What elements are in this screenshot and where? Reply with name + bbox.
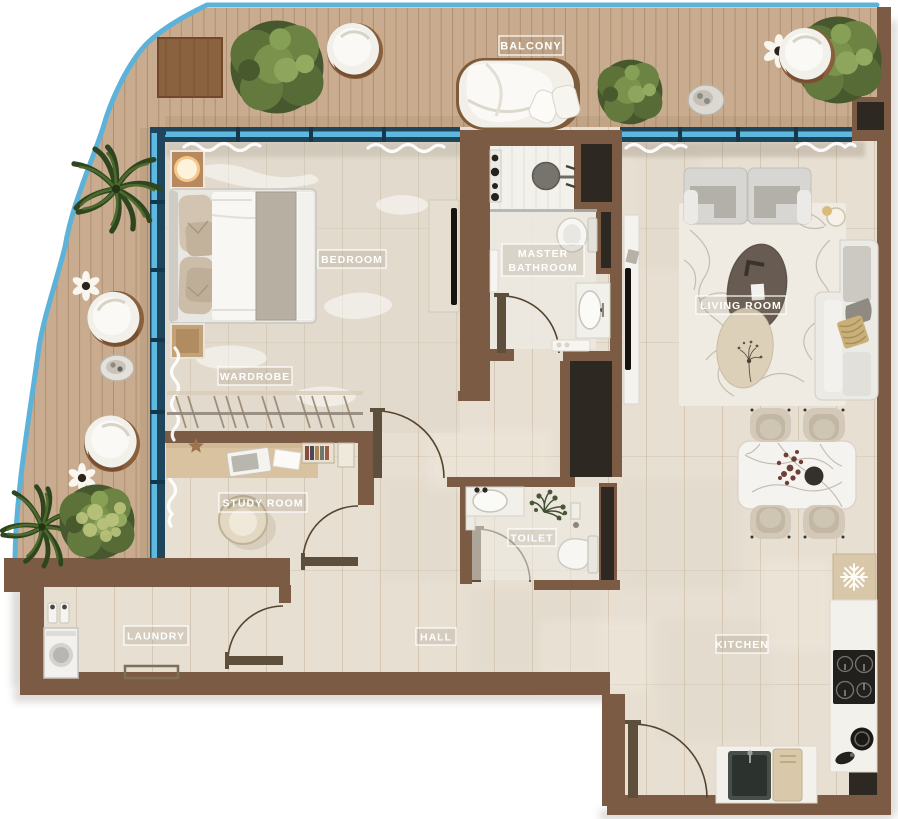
svg-text:WARDROBE: WARDROBE bbox=[220, 371, 290, 383]
svg-text:BEDROOM: BEDROOM bbox=[321, 254, 383, 266]
svg-text:MASTER: MASTER bbox=[518, 248, 568, 260]
svg-text:HALL: HALL bbox=[420, 632, 452, 644]
svg-text:KITCHEN: KITCHEN bbox=[715, 639, 769, 651]
svg-text:LIVING ROOM: LIVING ROOM bbox=[700, 300, 782, 312]
svg-text:TOILET: TOILET bbox=[510, 533, 553, 545]
svg-text:BATHROOM: BATHROOM bbox=[508, 262, 577, 274]
svg-text:BALCONY: BALCONY bbox=[500, 41, 561, 53]
svg-text:LAUNDRY: LAUNDRY bbox=[127, 631, 185, 643]
svg-text:STUDY ROOM: STUDY ROOM bbox=[223, 498, 304, 510]
